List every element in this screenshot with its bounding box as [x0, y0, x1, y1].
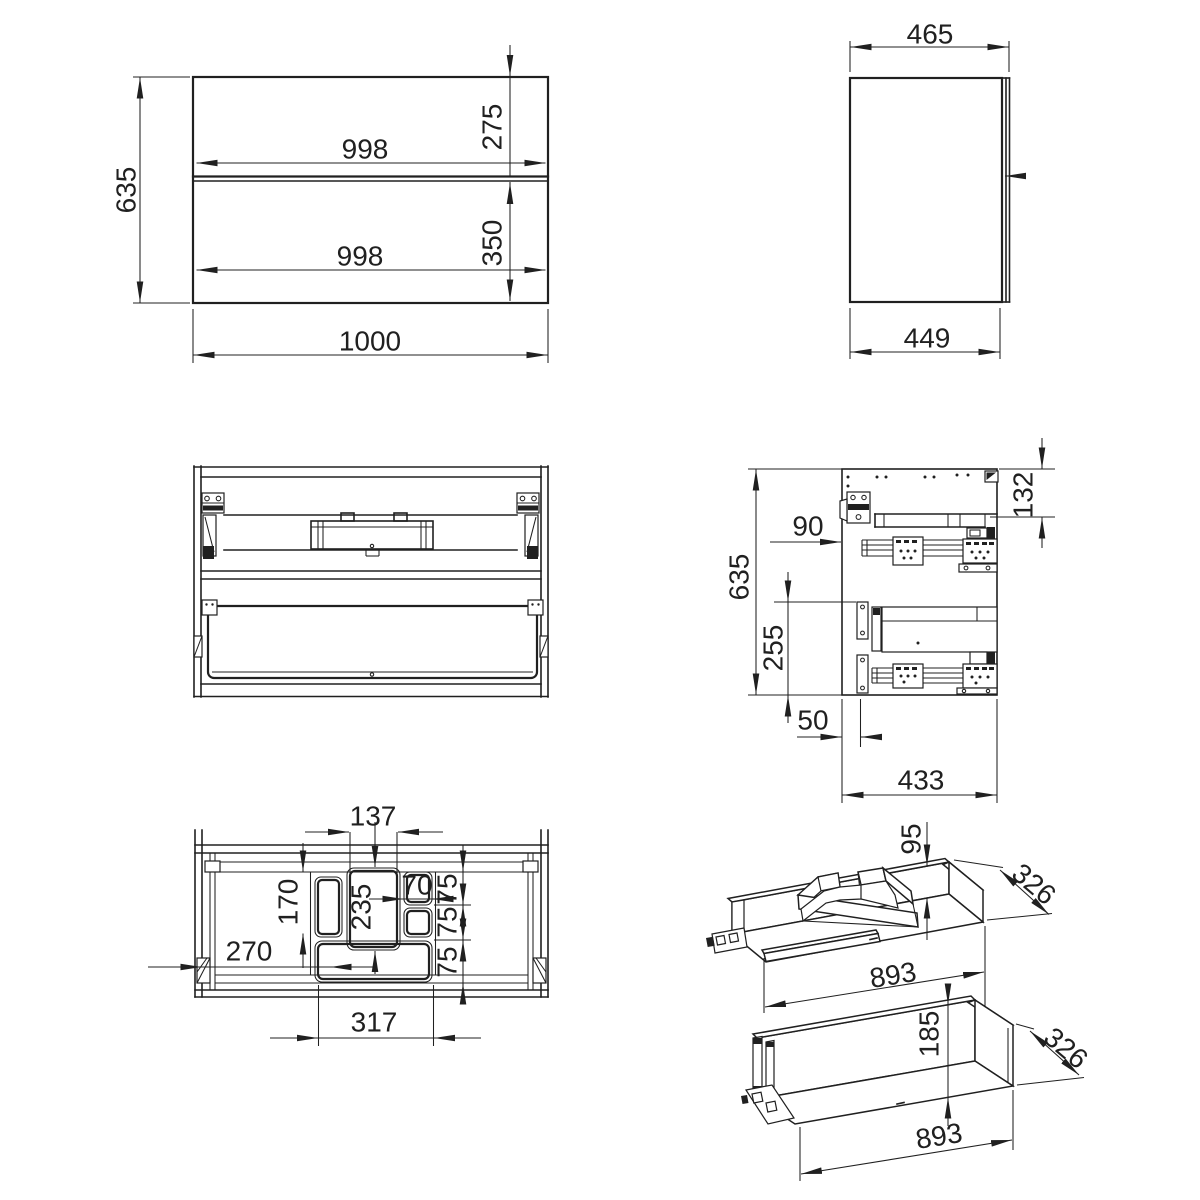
- top-rail: [875, 514, 997, 527]
- hinge-bracket-right: [517, 493, 539, 559]
- dim-section-slide-setback: 90: [792, 511, 823, 542]
- dim-front-upper-width: 998: [342, 134, 389, 165]
- technical-drawing-canvas: 635 998 275 350 998 1000 465: [0, 0, 1200, 1200]
- dim-section-top-offset: 132: [1008, 472, 1039, 519]
- hinge-bracket-left: [202, 493, 224, 559]
- dim-lower-drawer-height: 185: [914, 1011, 945, 1058]
- dim-front-overall-width: 1000: [339, 326, 401, 357]
- drawing-sheet: 635 998 275 350 998 1000 465: [0, 0, 1200, 1200]
- upper-drawer-3d: 95 893 326: [706, 822, 1062, 1013]
- lower-drawer-3d: 185 893 326: [741, 989, 1094, 1181]
- front-mounting-strips: [857, 602, 868, 693]
- suspension-bracket: [840, 492, 870, 523]
- dim-plan-tray-span: 317: [351, 1007, 398, 1038]
- corner-bracket: [985, 471, 998, 482]
- upper-drawer-slide-3d: [706, 900, 747, 953]
- dim-front-height: 635: [111, 167, 142, 214]
- dim-section-height: 635: [724, 554, 755, 601]
- sink-recess-box: [311, 513, 433, 549]
- dim-plan-center-length: 235: [346, 884, 377, 931]
- dim-plan-small-width: 70: [401, 870, 432, 901]
- dim-lower-drawer-depth: 326: [1038, 1021, 1094, 1075]
- side-section-view: 635 255 90 50 433 132: [724, 438, 1056, 803]
- front-open-view: [194, 466, 548, 697]
- lower-drawer-section: [872, 607, 997, 665]
- dim-upper-drawer-width: 893: [868, 956, 919, 994]
- dim-front-lower-height: 350: [477, 220, 508, 267]
- dim-plan-small-height-2: 75: [432, 906, 463, 937]
- dim-section-front-inset: 50: [797, 705, 828, 736]
- dim-plan-left-cutout-length: 170: [273, 879, 304, 926]
- dim-plan-center-width: 137: [350, 801, 397, 832]
- dim-side-overall-depth: 465: [907, 19, 954, 50]
- dim-side-carcass-depth: 449: [904, 323, 951, 354]
- dim-front-lower-width: 998: [337, 241, 384, 272]
- dim-front-upper-height: 275: [477, 104, 508, 151]
- lower-drawer-slide: [872, 664, 997, 694]
- dim-section-depth: 433: [898, 765, 945, 796]
- plan-view: 137 235 170 70 75 75 75 270 317: [148, 801, 548, 1047]
- dim-plan-small-height-3: 75: [432, 946, 463, 977]
- dim-plan-small-height-1: 75: [432, 873, 463, 904]
- dim-upper-drawer-depth: 326: [1006, 857, 1062, 911]
- dim-section-lower-span: 255: [758, 625, 789, 672]
- dim-plan-left-offset: 270: [226, 936, 273, 967]
- upper-drawer-slide: [862, 537, 997, 572]
- front-view: 635 998 275 350 998 1000: [111, 45, 549, 363]
- lower-drawer-front: [202, 600, 543, 678]
- dim-upper-drawer-wall-height: 95: [896, 823, 927, 854]
- side-view: 465 449: [850, 19, 1017, 360]
